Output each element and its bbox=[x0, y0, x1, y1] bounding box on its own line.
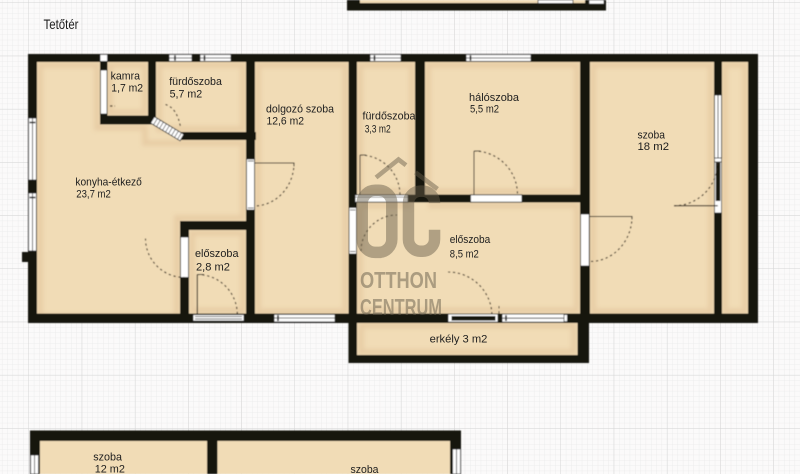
svg-text:erkély 3 m2: erkély 3 m2 bbox=[430, 334, 488, 346]
svg-text:szoba: szoba bbox=[351, 464, 380, 474]
svg-text:8,5 m2: 8,5 m2 bbox=[450, 249, 479, 261]
svg-text:18 m2: 18 m2 bbox=[638, 141, 670, 153]
svg-text:1,7 m2: 1,7 m2 bbox=[111, 82, 143, 94]
svg-text:szoba: szoba bbox=[638, 130, 666, 142]
svg-text:CENTRUM: CENTRUM bbox=[360, 294, 442, 320]
svg-text:dolgozó szoba: dolgozó szoba bbox=[266, 104, 335, 116]
svg-text:5,7 m2: 5,7 m2 bbox=[170, 88, 203, 100]
svg-text:előszoba: előszoba bbox=[195, 248, 239, 260]
svg-text:konyha-étkező: konyha-étkező bbox=[75, 177, 141, 189]
svg-text:12 m2: 12 m2 bbox=[95, 464, 125, 474]
svg-text:12,6 m2: 12,6 m2 bbox=[267, 116, 305, 128]
svg-text:OTTHON: OTTHON bbox=[360, 267, 437, 293]
svg-text:2,8 m2: 2,8 m2 bbox=[196, 262, 230, 274]
svg-text:3,3 m2: 3,3 m2 bbox=[365, 124, 391, 136]
svg-text:Tetőtér: Tetőtér bbox=[44, 16, 79, 32]
svg-text:fürdőszoba: fürdőszoba bbox=[169, 76, 223, 88]
svg-text:5,5 m2: 5,5 m2 bbox=[470, 104, 499, 116]
svg-text:szoba: szoba bbox=[93, 452, 123, 464]
svg-text:előszoba: előszoba bbox=[450, 234, 491, 246]
svg-text:hálószoba: hálószoba bbox=[469, 92, 520, 104]
svg-text:23,7 m2: 23,7 m2 bbox=[76, 189, 111, 201]
svg-text:fürdőszoba: fürdőszoba bbox=[363, 111, 417, 123]
svg-text:kamra: kamra bbox=[111, 70, 141, 82]
